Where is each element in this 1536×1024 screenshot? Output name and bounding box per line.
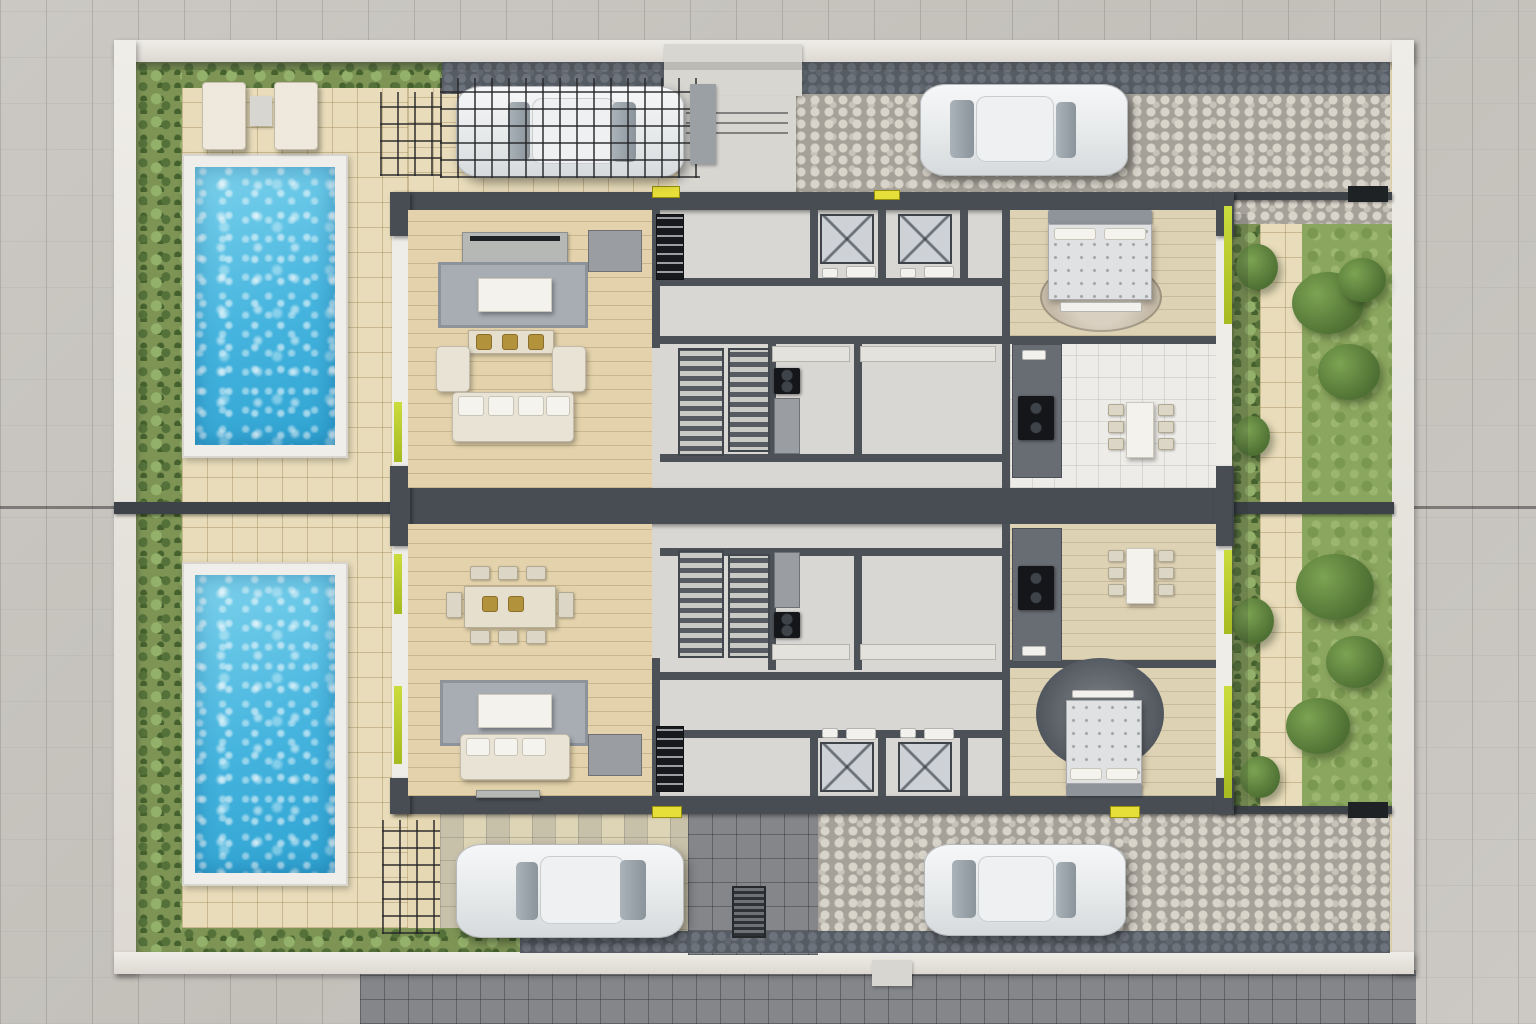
unit-b-bed-pillow-1 bbox=[1070, 768, 1102, 780]
garden-bush-4 bbox=[1296, 554, 1374, 620]
unit-a-stair-run-1 bbox=[678, 348, 724, 456]
lime-accent-e2 bbox=[1224, 550, 1232, 634]
car-2-windshield bbox=[950, 100, 974, 158]
unit-b-dining-chair-w5 bbox=[498, 630, 518, 644]
garden-gate-south bbox=[1348, 802, 1388, 818]
entry-pad-south bbox=[872, 960, 912, 986]
unit-a-armchair-left bbox=[436, 346, 470, 392]
unit-a-tray-3 bbox=[528, 334, 544, 350]
party-wall-slab bbox=[408, 488, 1216, 524]
tag-wall-north bbox=[874, 190, 900, 200]
unit-a-wall-bath-2 bbox=[878, 210, 886, 278]
unit-b-dining-chair-w3 bbox=[526, 566, 546, 580]
divider-fence-east bbox=[1230, 502, 1394, 514]
unit-a-wall-corridor bbox=[660, 336, 1002, 344]
unit-a-wall-bath-row bbox=[660, 278, 1002, 286]
unit-a-wall-bath-1 bbox=[810, 210, 818, 278]
car-4-windshield bbox=[952, 860, 976, 918]
unit-a-kitchenette-counter bbox=[772, 346, 850, 362]
unit-a-tv bbox=[470, 236, 560, 241]
unit-b-stair-run-2 bbox=[728, 554, 770, 658]
pool-2-water bbox=[195, 575, 335, 873]
unit-a-utility-counter bbox=[860, 346, 996, 362]
facade-cap-nw bbox=[390, 192, 410, 236]
garden-bush-2 bbox=[1318, 344, 1380, 400]
unit-a-bed-pillow-1 bbox=[1054, 228, 1096, 240]
wall-shadow-north bbox=[136, 62, 1392, 70]
unit-b-stair-run-1 bbox=[678, 550, 724, 658]
unit-b-vanity-1 bbox=[846, 728, 876, 740]
lime-accent-w3 bbox=[394, 686, 402, 764]
unit-a-sofa-cushion-4 bbox=[546, 396, 570, 416]
perimeter-wall-east bbox=[1392, 40, 1414, 974]
unit-b-dining-chair-w4 bbox=[470, 630, 490, 644]
garden-bush-5 bbox=[1326, 636, 1384, 688]
pergola-side-trellis-south bbox=[382, 820, 440, 934]
unit-b-sofa-cushion-1 bbox=[466, 738, 490, 756]
unit-a-vanity-2 bbox=[924, 266, 954, 278]
carport-shade-panel bbox=[690, 84, 716, 164]
unit-b-shower-2 bbox=[898, 742, 952, 792]
car-4-rear-glass bbox=[1056, 862, 1076, 918]
unit-a-entry-closet bbox=[588, 230, 642, 272]
car-4-roof bbox=[978, 856, 1054, 922]
building-shadow-east bbox=[1232, 214, 1248, 810]
unit-a-coffee-table bbox=[478, 278, 552, 312]
pergola-side-trellis-north bbox=[380, 92, 442, 176]
unit-a-tray-1 bbox=[476, 334, 492, 350]
unit-b-dining-chair-e2 bbox=[1108, 567, 1124, 579]
unit-b-dining-chair-w1 bbox=[470, 566, 490, 580]
lounger-side-table bbox=[250, 96, 272, 126]
garden-bush-6 bbox=[1286, 698, 1350, 754]
unit-b-kitchenette-cooktop bbox=[774, 612, 800, 638]
unit-b-wall-corridor bbox=[660, 672, 1002, 680]
unit-a-dining-chair-3 bbox=[1108, 438, 1124, 450]
unit-a-sofa-cushion-1 bbox=[458, 396, 484, 416]
tag-unit-b-south-1 bbox=[652, 806, 682, 818]
unit-a-sofa-cushion-2 bbox=[488, 396, 514, 416]
facade-cap-e-center bbox=[1214, 466, 1234, 546]
unit-b-utility-counter bbox=[860, 644, 996, 660]
unit-b-dining-chair-w6 bbox=[526, 630, 546, 644]
unit-a-sofa-cushion-3 bbox=[518, 396, 544, 416]
unit-b-dining-table-east bbox=[1126, 548, 1154, 604]
car-3-rear-glass bbox=[516, 862, 538, 920]
unit-b-centerpiece-2 bbox=[508, 596, 524, 612]
unit-b-entry-closet bbox=[588, 734, 642, 776]
building-wall-north bbox=[392, 192, 1232, 210]
garden-bush-3 bbox=[1338, 258, 1386, 302]
unit-b-kitchenette-cabinet bbox=[774, 552, 800, 608]
lime-accent-e3 bbox=[1224, 686, 1232, 798]
unit-a-tray-2 bbox=[502, 334, 518, 350]
unit-b-shower-1 bbox=[820, 742, 874, 792]
car-3-windshield bbox=[620, 860, 646, 920]
tag-entry-north bbox=[652, 186, 680, 198]
unit-b-dining-chair-e4 bbox=[1158, 550, 1174, 562]
unit-a-stair-run-2 bbox=[728, 348, 770, 452]
unit-a-shower-2 bbox=[898, 214, 952, 264]
unit-b-dining-chair-e1 bbox=[1108, 550, 1124, 562]
unit-b-sofa-cushion-2 bbox=[494, 738, 518, 756]
unit-b-dining-chair-w2 bbox=[498, 566, 518, 580]
unit-a-kitchenette-cabinet bbox=[774, 398, 800, 454]
unit-b-wall-bath-1 bbox=[810, 738, 818, 796]
unit-a-dining-chair-4 bbox=[1158, 404, 1174, 416]
unit-a-basement-stair bbox=[656, 214, 684, 280]
facade-cap-sw bbox=[390, 778, 410, 814]
lime-accent-w1 bbox=[394, 402, 402, 462]
unit-b-kitchenette-counter bbox=[772, 644, 850, 660]
floor-plan-scene bbox=[0, 0, 1536, 1024]
lime-accent-e1 bbox=[1224, 206, 1232, 324]
unit-a-dining-table bbox=[1126, 402, 1154, 458]
divider-fence-west bbox=[114, 502, 392, 514]
unit-b-kitchen-cooktop bbox=[1018, 566, 1054, 610]
unit-b-sofa-cushion-3 bbox=[522, 738, 546, 756]
unit-b-wall-east-rooms bbox=[1002, 524, 1010, 796]
unit-a-wall-bath-3 bbox=[960, 210, 968, 278]
car-2-rear-glass bbox=[1056, 102, 1076, 158]
unit-a-toilet-1 bbox=[822, 268, 838, 278]
unit-b-vanity-2 bbox=[924, 728, 954, 740]
unit-b-basement-stair bbox=[656, 726, 684, 792]
unit-b-bed-bench bbox=[1072, 690, 1134, 698]
unit-a-dining-chair-5 bbox=[1158, 421, 1174, 433]
unit-a-bed-pillow-2 bbox=[1104, 228, 1146, 240]
unit-a-dining-chair-1 bbox=[1108, 404, 1124, 416]
unit-b-kitchen-sink bbox=[1022, 646, 1046, 656]
unit-a-vanity-1 bbox=[846, 266, 876, 278]
unit-a-armchair-right bbox=[552, 346, 586, 392]
unit-b-wall-bath-2 bbox=[878, 738, 886, 796]
property-line-east bbox=[1414, 506, 1536, 509]
tag-unit-b-south-2 bbox=[1110, 806, 1140, 818]
carport-pergola bbox=[440, 78, 700, 178]
unit-a-bed-headboard bbox=[1048, 210, 1152, 224]
unit-b-toilet-2 bbox=[900, 728, 916, 738]
pool-1-water bbox=[195, 167, 335, 445]
drain-grate bbox=[732, 886, 766, 938]
unit-b-toilet-1 bbox=[822, 728, 838, 738]
car-2-roof bbox=[976, 96, 1054, 162]
unit-a-toilet-2 bbox=[900, 268, 916, 278]
unit-a-kitchen-sink bbox=[1022, 350, 1046, 360]
building-wall-south bbox=[392, 796, 1232, 814]
unit-b-bed-headboard bbox=[1066, 784, 1142, 796]
unit-a-kitchen-cooktop bbox=[1018, 396, 1054, 440]
unit-b-coffee-table bbox=[478, 694, 552, 728]
unit-b-dining-chair-w8 bbox=[558, 592, 574, 618]
unit-a-dining-chair-2 bbox=[1108, 421, 1124, 433]
facade-cap-w-center bbox=[390, 466, 410, 546]
unit-b-dining-chair-e3 bbox=[1108, 584, 1124, 596]
unit-a-dining-chair-6 bbox=[1158, 438, 1174, 450]
unit-b-dining-chair-w7 bbox=[446, 592, 462, 618]
unit-b-dining-chair-e6 bbox=[1158, 584, 1174, 596]
unit-b-centerpiece-1 bbox=[482, 596, 498, 612]
unit-b-media-console bbox=[476, 790, 540, 798]
unit-a-bed-bench bbox=[1060, 302, 1142, 312]
unit-a-shower-1 bbox=[820, 214, 874, 264]
unit-b-wall-bath-3 bbox=[960, 738, 968, 796]
car-3-roof bbox=[540, 856, 624, 924]
perimeter-wall-south bbox=[114, 952, 1414, 974]
property-line-west bbox=[0, 506, 114, 509]
unit-a-kitchenette-cooktop bbox=[774, 368, 800, 394]
unit-a-wall-east-rooms bbox=[1002, 210, 1010, 488]
unit-b-dining-chair-e5 bbox=[1158, 567, 1174, 579]
sun-lounger-2 bbox=[274, 82, 318, 150]
unit-b-bed-pillow-2 bbox=[1106, 768, 1138, 780]
sun-lounger-1 bbox=[202, 82, 246, 150]
unit-a-wall-bed-dine bbox=[1010, 336, 1216, 344]
lime-accent-w2 bbox=[394, 554, 402, 614]
garden-gate-north bbox=[1348, 186, 1388, 202]
